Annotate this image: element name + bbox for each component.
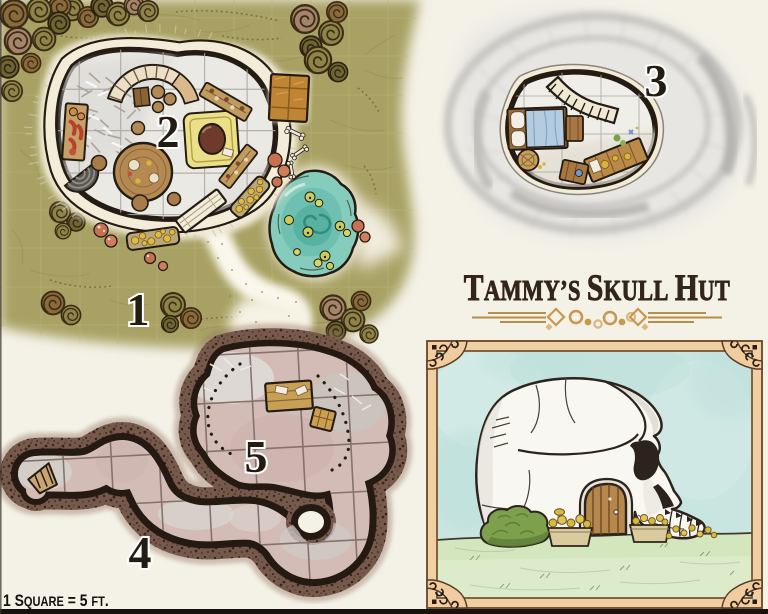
- svg-text:2: 2: [157, 106, 180, 157]
- svg-text:1: 1: [127, 284, 150, 335]
- svg-text:5: 5: [245, 431, 268, 482]
- svg-text:1 SQUARE = 5 FT.: 1 SQUARE = 5 FT.: [3, 592, 109, 611]
- svg-text:4: 4: [129, 527, 152, 578]
- svg-text:3: 3: [645, 55, 668, 106]
